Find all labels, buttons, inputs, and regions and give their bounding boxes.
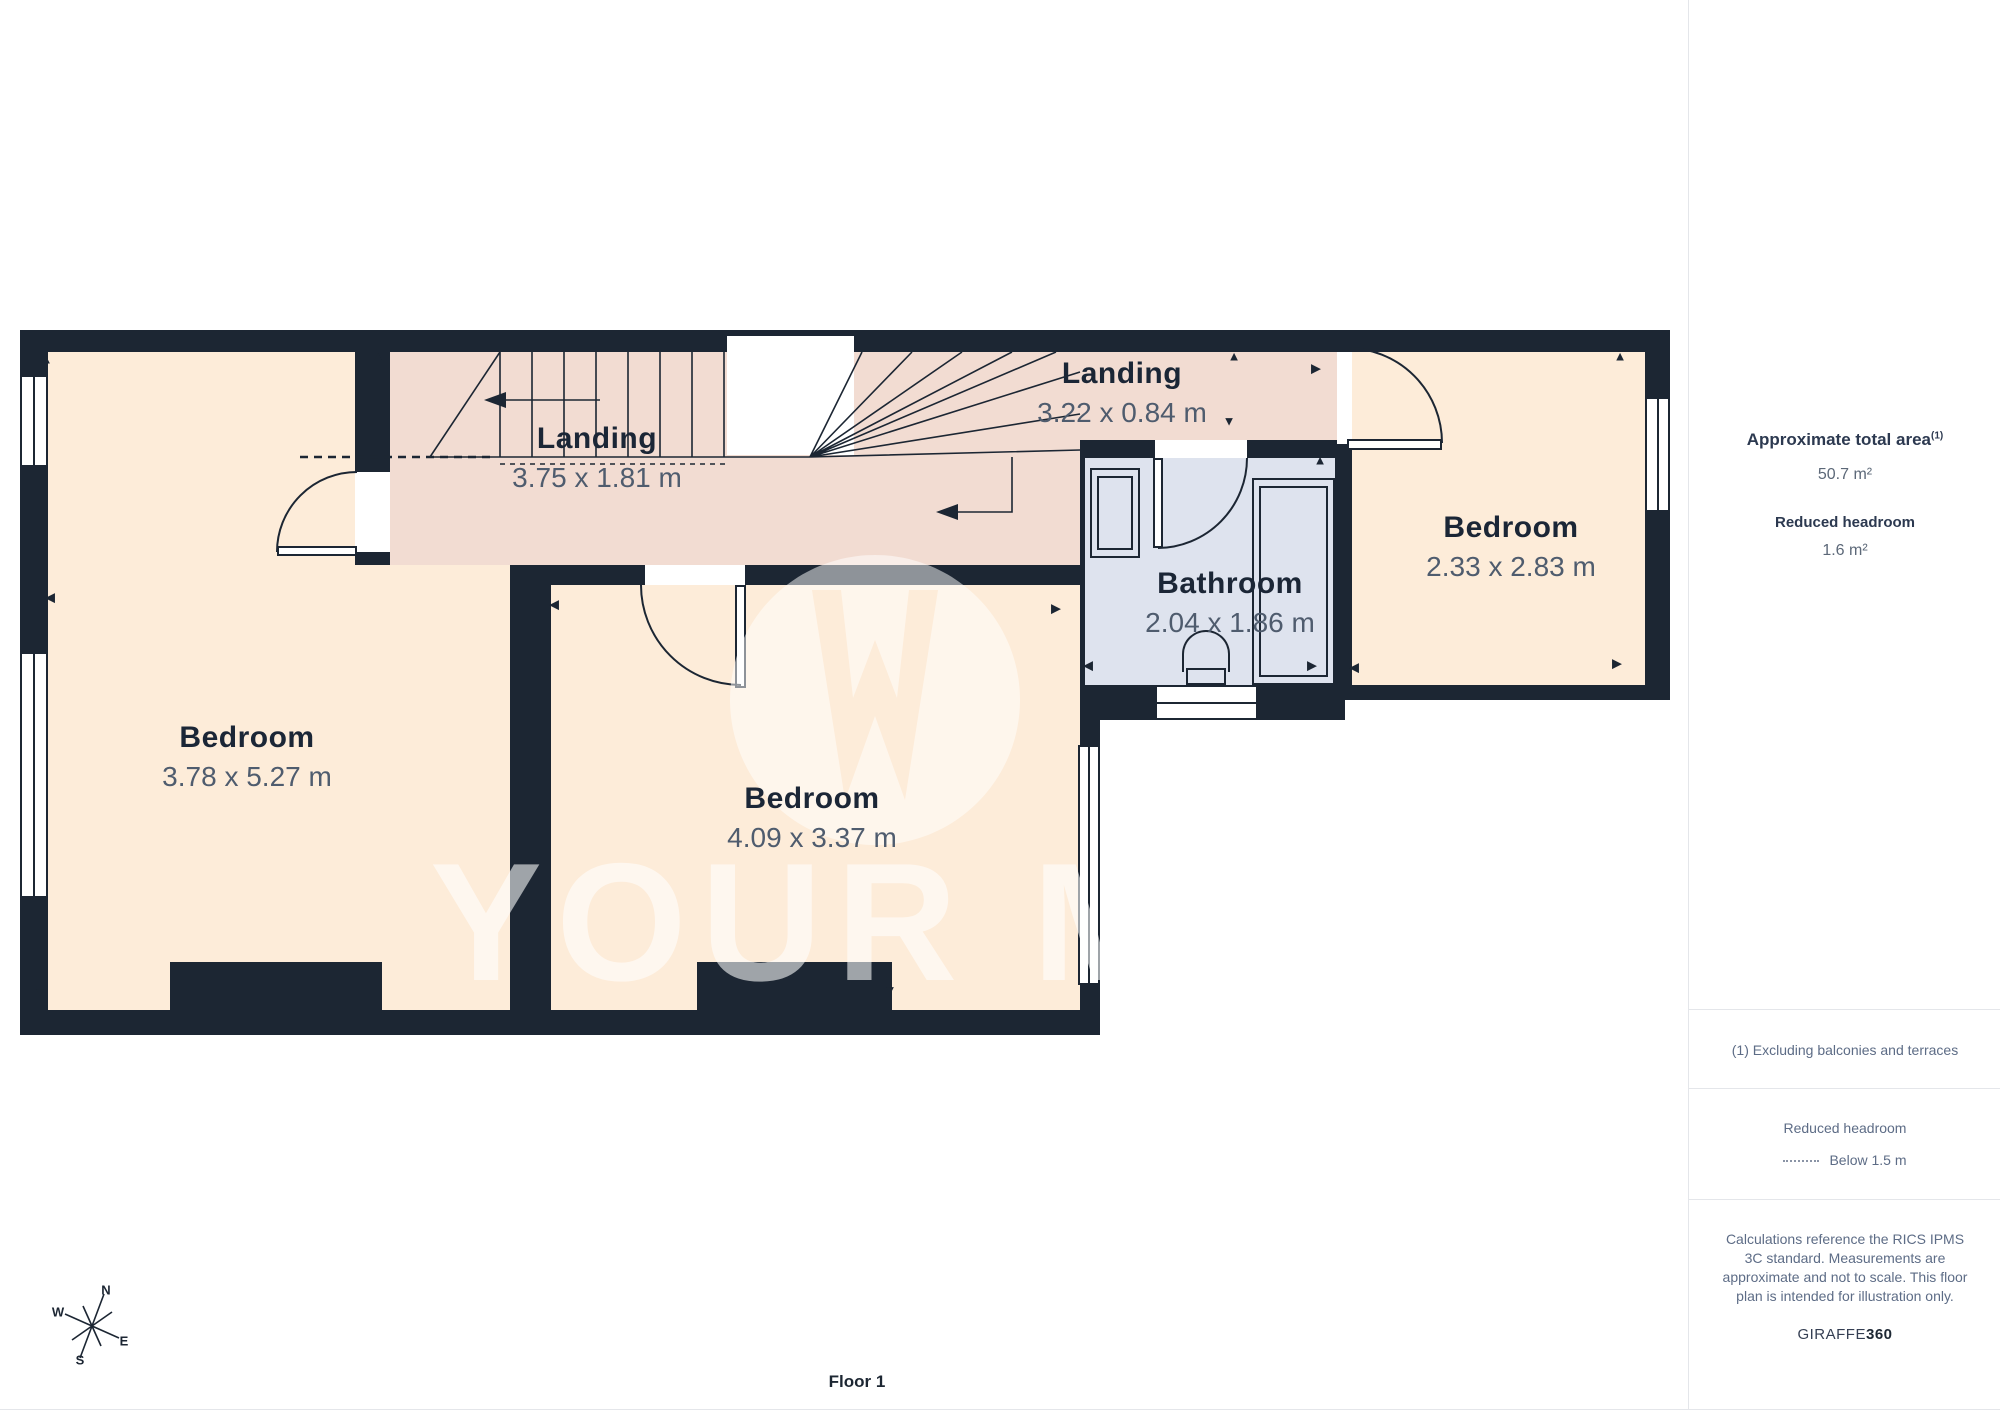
dimension-arrow-icon: ▼ xyxy=(884,984,897,997)
door-gap-right-bedroom xyxy=(1337,352,1352,444)
footnote-section: (1) Excluding balconies and terraces xyxy=(1689,1009,2000,1088)
window-left-upper xyxy=(20,375,48,467)
compass-north: N xyxy=(101,1283,110,1298)
dimension-arrow-icon: ▼ xyxy=(34,986,47,999)
legend-section: Reduced headroom Below 1.5 m xyxy=(1689,1088,2000,1199)
info-sidebar: Approximate total area(1) 50.7 m² Reduce… xyxy=(1688,0,2000,1410)
footnote-ref: (1) xyxy=(1931,430,1943,441)
window-left-lower xyxy=(20,652,48,898)
legend-row: Below 1.5 m xyxy=(1689,1152,2000,1168)
dimension-arrow-icon: ◀ xyxy=(1349,661,1359,674)
disclaimer-section: Calculations reference the RICS IPMS 3C … xyxy=(1689,1199,2000,1410)
footnote-text: (1) Excluding balconies and terraces xyxy=(1689,1042,2000,1058)
page-bottom-divider xyxy=(0,1409,2000,1410)
compass-south: S xyxy=(76,1353,85,1368)
legend-title: Reduced headroom xyxy=(1689,1120,2000,1136)
dimension-arrow-icon: ▼ xyxy=(1223,415,1236,428)
dimension-arrow-icon: ◀ xyxy=(549,598,559,611)
label-right-bedroom: Bedroom 2.33 x 2.83 m xyxy=(1426,511,1596,583)
label-bathroom: Bathroom 2.04 x 1.86 m xyxy=(1145,567,1315,639)
label-main-landing: Landing 3.75 x 1.81 m xyxy=(512,422,682,494)
brand-logo: GIRAFFE360 xyxy=(1689,1326,2000,1343)
label-middle-bedroom: Bedroom 4.09 x 3.37 m xyxy=(727,782,897,854)
door-leaf-right-bedroom xyxy=(1347,439,1442,450)
compass-star-icon xyxy=(40,1270,150,1380)
brand-name: GIRAFFE xyxy=(1797,1326,1866,1343)
dimension-arrow-icon: ▶ xyxy=(1311,362,1321,375)
compass-west: W xyxy=(52,1305,64,1320)
disclaimer-text: Calculations reference the RICS IPMS 3C … xyxy=(1717,1230,1973,1306)
label-east-landing: Landing 3.22 x 0.84 m xyxy=(1037,357,1207,429)
reduced-headroom-value: 1.6 m² xyxy=(1689,542,2000,560)
toilet-base xyxy=(1186,668,1226,685)
compass-east: E xyxy=(120,1334,129,1349)
area-summary-section: Approximate total area(1) 50.7 m² Reduce… xyxy=(1689,0,2000,1009)
reduced-headroom-label: Reduced headroom xyxy=(1689,514,2000,531)
door-gap-bathroom xyxy=(1155,440,1247,458)
window-bathroom-south xyxy=(1155,685,1258,720)
dimension-arrow-icon: ▲ xyxy=(372,350,385,363)
window-middle-bedroom-east xyxy=(1078,745,1100,985)
door-leaf-middle-bedroom xyxy=(735,585,746,688)
brand-suffix: 360 xyxy=(1866,1326,1893,1343)
door-leaf-left-bedroom xyxy=(277,546,357,556)
total-area-value: 50.7 m² xyxy=(1689,466,2000,484)
dimension-arrow-icon: ▶ xyxy=(1307,659,1317,672)
dimension-arrow-icon: ◀ xyxy=(1083,659,1093,672)
dimension-arrow-icon: ▲ xyxy=(1228,350,1241,363)
chimney-breast-middle xyxy=(697,962,892,1010)
door-gap-middle-bedroom xyxy=(645,565,745,585)
dimension-arrow-icon: ◀ xyxy=(45,591,55,604)
label-left-bedroom: Bedroom 3.78 x 5.27 m xyxy=(162,721,332,793)
door-leaf-bathroom xyxy=(1153,458,1163,548)
dimension-arrow-icon: ▲ xyxy=(1314,454,1327,467)
dimension-arrow-icon: ▲ xyxy=(1614,350,1627,363)
door-gap-left-bedroom xyxy=(355,472,390,552)
sink-basin xyxy=(1097,476,1133,550)
stairwell-void xyxy=(727,336,854,455)
legend-value: Below 1.5 m xyxy=(1829,1152,1906,1168)
total-area-label: Approximate total area(1) xyxy=(1689,430,2000,450)
dimension-arrow-icon: ▲ xyxy=(40,353,53,366)
dimension-arrow-icon: ▶ xyxy=(1612,657,1622,670)
dimension-arrow-icon: ▶ xyxy=(1051,602,1061,615)
dotted-line-icon xyxy=(1783,1160,1819,1162)
floor-label: Floor 1 xyxy=(829,1372,886,1392)
chimney-breast-left xyxy=(170,962,382,1010)
window-right-bedroom-east xyxy=(1645,397,1670,512)
